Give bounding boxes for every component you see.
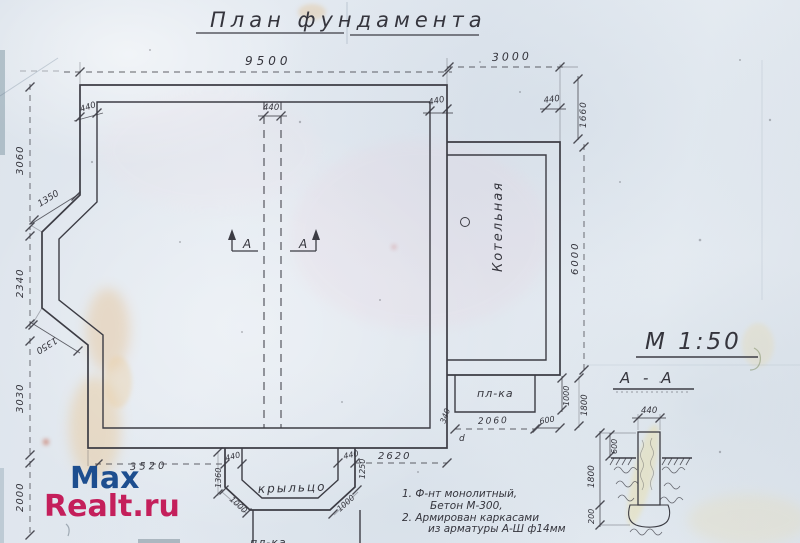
section-dim-1800: 1800	[587, 465, 597, 488]
dim-3060: 3060	[15, 146, 26, 175]
note-line-2: Бетон М-300,	[430, 500, 503, 512]
watermark: Max Realt.ru	[44, 465, 180, 521]
porch-label: крыльцо	[258, 480, 327, 496]
dim-600-plat: 600	[539, 414, 556, 426]
dim-2620: 2620	[378, 451, 411, 462]
dim-1350-top: 1350	[36, 189, 61, 210]
dim-440-porch-right: 440	[343, 449, 360, 461]
page-title: План фундамента	[210, 8, 487, 32]
boiler-room-label: Котельная	[491, 181, 506, 272]
dim-1800-plat: 1800	[580, 394, 590, 416]
dim-3000: 3000	[492, 50, 532, 64]
dim-2060: 2060	[478, 416, 509, 427]
note-line-1: 1. Ф-нт монолитный,	[402, 488, 517, 500]
dim-1350-bottom: 1350	[34, 334, 59, 355]
dim-3030: 3030	[15, 384, 26, 413]
dim-340: 340	[438, 407, 452, 424]
dim-2000: 2000	[15, 483, 26, 512]
dim-1000-plat: 1000	[562, 386, 571, 406]
boiler-platform-label: пл-ка	[477, 387, 514, 400]
section-marker-a-right: А	[298, 237, 307, 251]
porch-walls	[225, 448, 360, 543]
dim-9500: 9500	[245, 54, 292, 68]
point-d-label: d	[459, 434, 465, 444]
dim-440-tl: 440	[79, 100, 98, 115]
porch-outer	[225, 448, 355, 510]
section-marker-a-left: А	[242, 237, 251, 251]
note-line-4: из арматуры А-Ш ф14мм	[428, 523, 566, 535]
dim-1000-chamfer-left: 1000	[228, 495, 249, 515]
dim-2340: 2340	[15, 269, 26, 298]
scale-label: М 1:50	[645, 329, 742, 355]
porch-platform-label: пл-ка	[250, 536, 287, 543]
dim-1250: 1250	[358, 459, 367, 479]
dim-6000: 6000	[570, 242, 581, 275]
dim-440-tr: 440	[428, 95, 446, 108]
section-dim-200: 200	[587, 509, 596, 524]
title-underline	[196, 33, 479, 35]
dim-1360: 1360	[214, 468, 223, 488]
section-dim-440: 440	[641, 406, 657, 416]
section-dim-600: 600	[610, 439, 619, 454]
dim-1660: 1660	[579, 101, 589, 128]
dim-440-mid: 440	[263, 103, 279, 113]
watermark-line-2: Realt.ru	[44, 493, 180, 521]
section-arrow-left	[228, 229, 236, 240]
notes-block: 1. Ф-нт монолитный, Бетон М-300, 2. Арми…	[402, 488, 566, 535]
dim-440-ext: 440	[543, 94, 560, 106]
scanned-foundation-plan: А А Котельная крыльцо пл-ка пл-ка d План…	[0, 0, 800, 543]
section-title: А - А	[619, 369, 675, 387]
dim-440-porch-left: 440	[224, 450, 241, 463]
